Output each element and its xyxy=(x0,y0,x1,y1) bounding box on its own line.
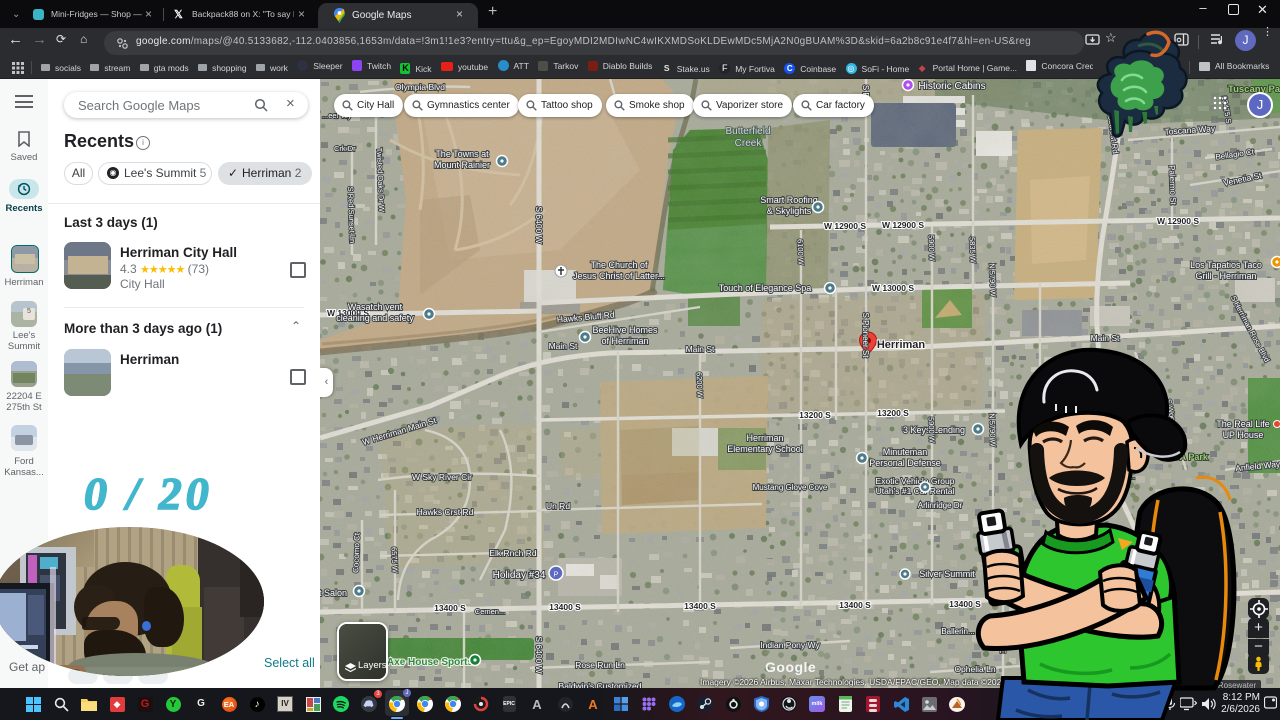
svg-text:cleaning and safety: cleaning and safety xyxy=(336,313,414,323)
svg-text:W 13000 S: W 13000 S xyxy=(872,283,914,293)
svg-text:Personal Defense: Personal Defense xyxy=(869,458,941,468)
svg-text:S 6400 W: S 6400 W xyxy=(534,636,544,673)
svg-text:W 12900 S: W 12900 S xyxy=(1157,216,1199,226)
svg-text:Cemen...: Cemen... xyxy=(475,607,505,616)
svg-text:W 12900 S: W 12900 S xyxy=(824,221,866,231)
svg-text:W Sky River Cir: W Sky River Cir xyxy=(412,472,472,482)
svg-text:Herriman: Herriman xyxy=(746,433,783,443)
svg-text:Utah's #1 Car Rental: Utah's #1 Car Rental xyxy=(876,486,955,496)
svg-text:Los Tapatios Taco: Los Tapatios Taco xyxy=(1190,260,1262,270)
svg-text:Cocomo Ct: Cocomo Ct xyxy=(351,532,361,573)
svg-text:Un Rd: Un Rd xyxy=(546,501,570,511)
svg-text:Mount Rainier: Mount Rainier xyxy=(434,160,490,170)
svg-text:of Herriman: of Herriman xyxy=(601,336,648,346)
svg-text:Baldwin's Customized: Baldwin's Customized xyxy=(559,681,642,688)
svg-text:Elementary School: Elementary School xyxy=(727,444,803,454)
svg-text:Main St: Main St xyxy=(686,344,715,354)
svg-text:Grill - Herriman: Grill - Herriman xyxy=(1195,271,1256,281)
svg-text:Hawks Crst Rd: Hawks Crst Rd xyxy=(417,507,474,517)
svg-text:P: P xyxy=(554,572,559,579)
svg-text:Historic Cabins: Historic Cabins xyxy=(918,81,985,92)
svg-text:Holiday #34: Holiday #34 xyxy=(493,570,546,581)
svg-text:N 5790 W: N 5790 W xyxy=(987,263,997,298)
svg-text:6575 W: 6575 W xyxy=(390,547,400,574)
svg-text:Butterfield: Butterfield xyxy=(725,126,770,137)
svg-text:S Pioneer St: S Pioneer St xyxy=(861,313,870,359)
svg-text:& Skylights: & Skylights xyxy=(767,206,812,216)
svg-text:Jesus Christ of Latter...: Jesus Christ of Latter... xyxy=(573,271,665,281)
svg-text:13400 S: 13400 S xyxy=(839,600,871,610)
svg-text:t Salon: t Salon xyxy=(320,588,347,598)
svg-text:Minuteman: Minuteman xyxy=(883,447,928,457)
svg-text:13200 S: 13200 S xyxy=(799,410,831,420)
svg-text:Smart Roofing: Smart Roofing xyxy=(760,195,818,205)
svg-text:13400 S: 13400 S xyxy=(434,603,466,613)
svg-text:Herriman: Herriman xyxy=(877,339,926,351)
svg-text:Mustang Glove Cove: Mustang Glove Cove xyxy=(753,483,828,492)
svg-text:Rose Run Ln: Rose Run Ln xyxy=(575,660,625,670)
svg-text:Axe House Sports: Axe House Sports xyxy=(387,657,474,668)
svg-text:13400 S: 13400 S xyxy=(684,601,716,611)
svg-text:Crk Dr: Crk Dr xyxy=(334,144,356,153)
svg-text:Wasatch vent: Wasatch vent xyxy=(348,302,403,312)
svg-text:5900 W: 5900 W xyxy=(927,417,937,444)
svg-text:Creek: Creek xyxy=(735,138,763,149)
svg-text:Exotic Vehicle Group: Exotic Vehicle Group xyxy=(876,476,955,486)
svg-text:Arlinridge Dr: Arlinridge Dr xyxy=(918,501,963,510)
svg-text:5835 W: 5835 W xyxy=(968,237,978,264)
svg-text:Touch of Elegance Spa: Touch of Elegance Spa xyxy=(719,283,812,293)
svg-text:Main St: Main St xyxy=(549,341,578,351)
svg-text:Indian Pony Wy: Indian Pony Wy xyxy=(760,640,820,650)
svg-text:Elk Rnch Rd: Elk Rnch Rd xyxy=(489,548,537,558)
svg-text:W 12900 S: W 12900 S xyxy=(882,220,924,230)
svg-text:6100 W: 6100 W xyxy=(796,239,806,266)
svg-text:S 6400 W: S 6400 W xyxy=(534,206,544,243)
svg-text:Olympia Blvd: Olympia Blvd xyxy=(395,82,445,92)
svg-text:The Towns at: The Towns at xyxy=(435,149,489,159)
svg-text:Palermo St: Palermo St xyxy=(1167,165,1177,206)
svg-text:The Church of: The Church of xyxy=(590,260,648,270)
svg-text:BeeHive Homes: BeeHive Homes xyxy=(592,325,658,335)
svg-text:5900 W: 5900 W xyxy=(927,235,937,262)
svg-text:6200 W: 6200 W xyxy=(695,372,705,399)
svg-text:13200 S: 13200 S xyxy=(877,408,909,418)
svg-text:13400 S: 13400 S xyxy=(549,602,581,612)
svg-text:Google: Google xyxy=(765,659,816,675)
